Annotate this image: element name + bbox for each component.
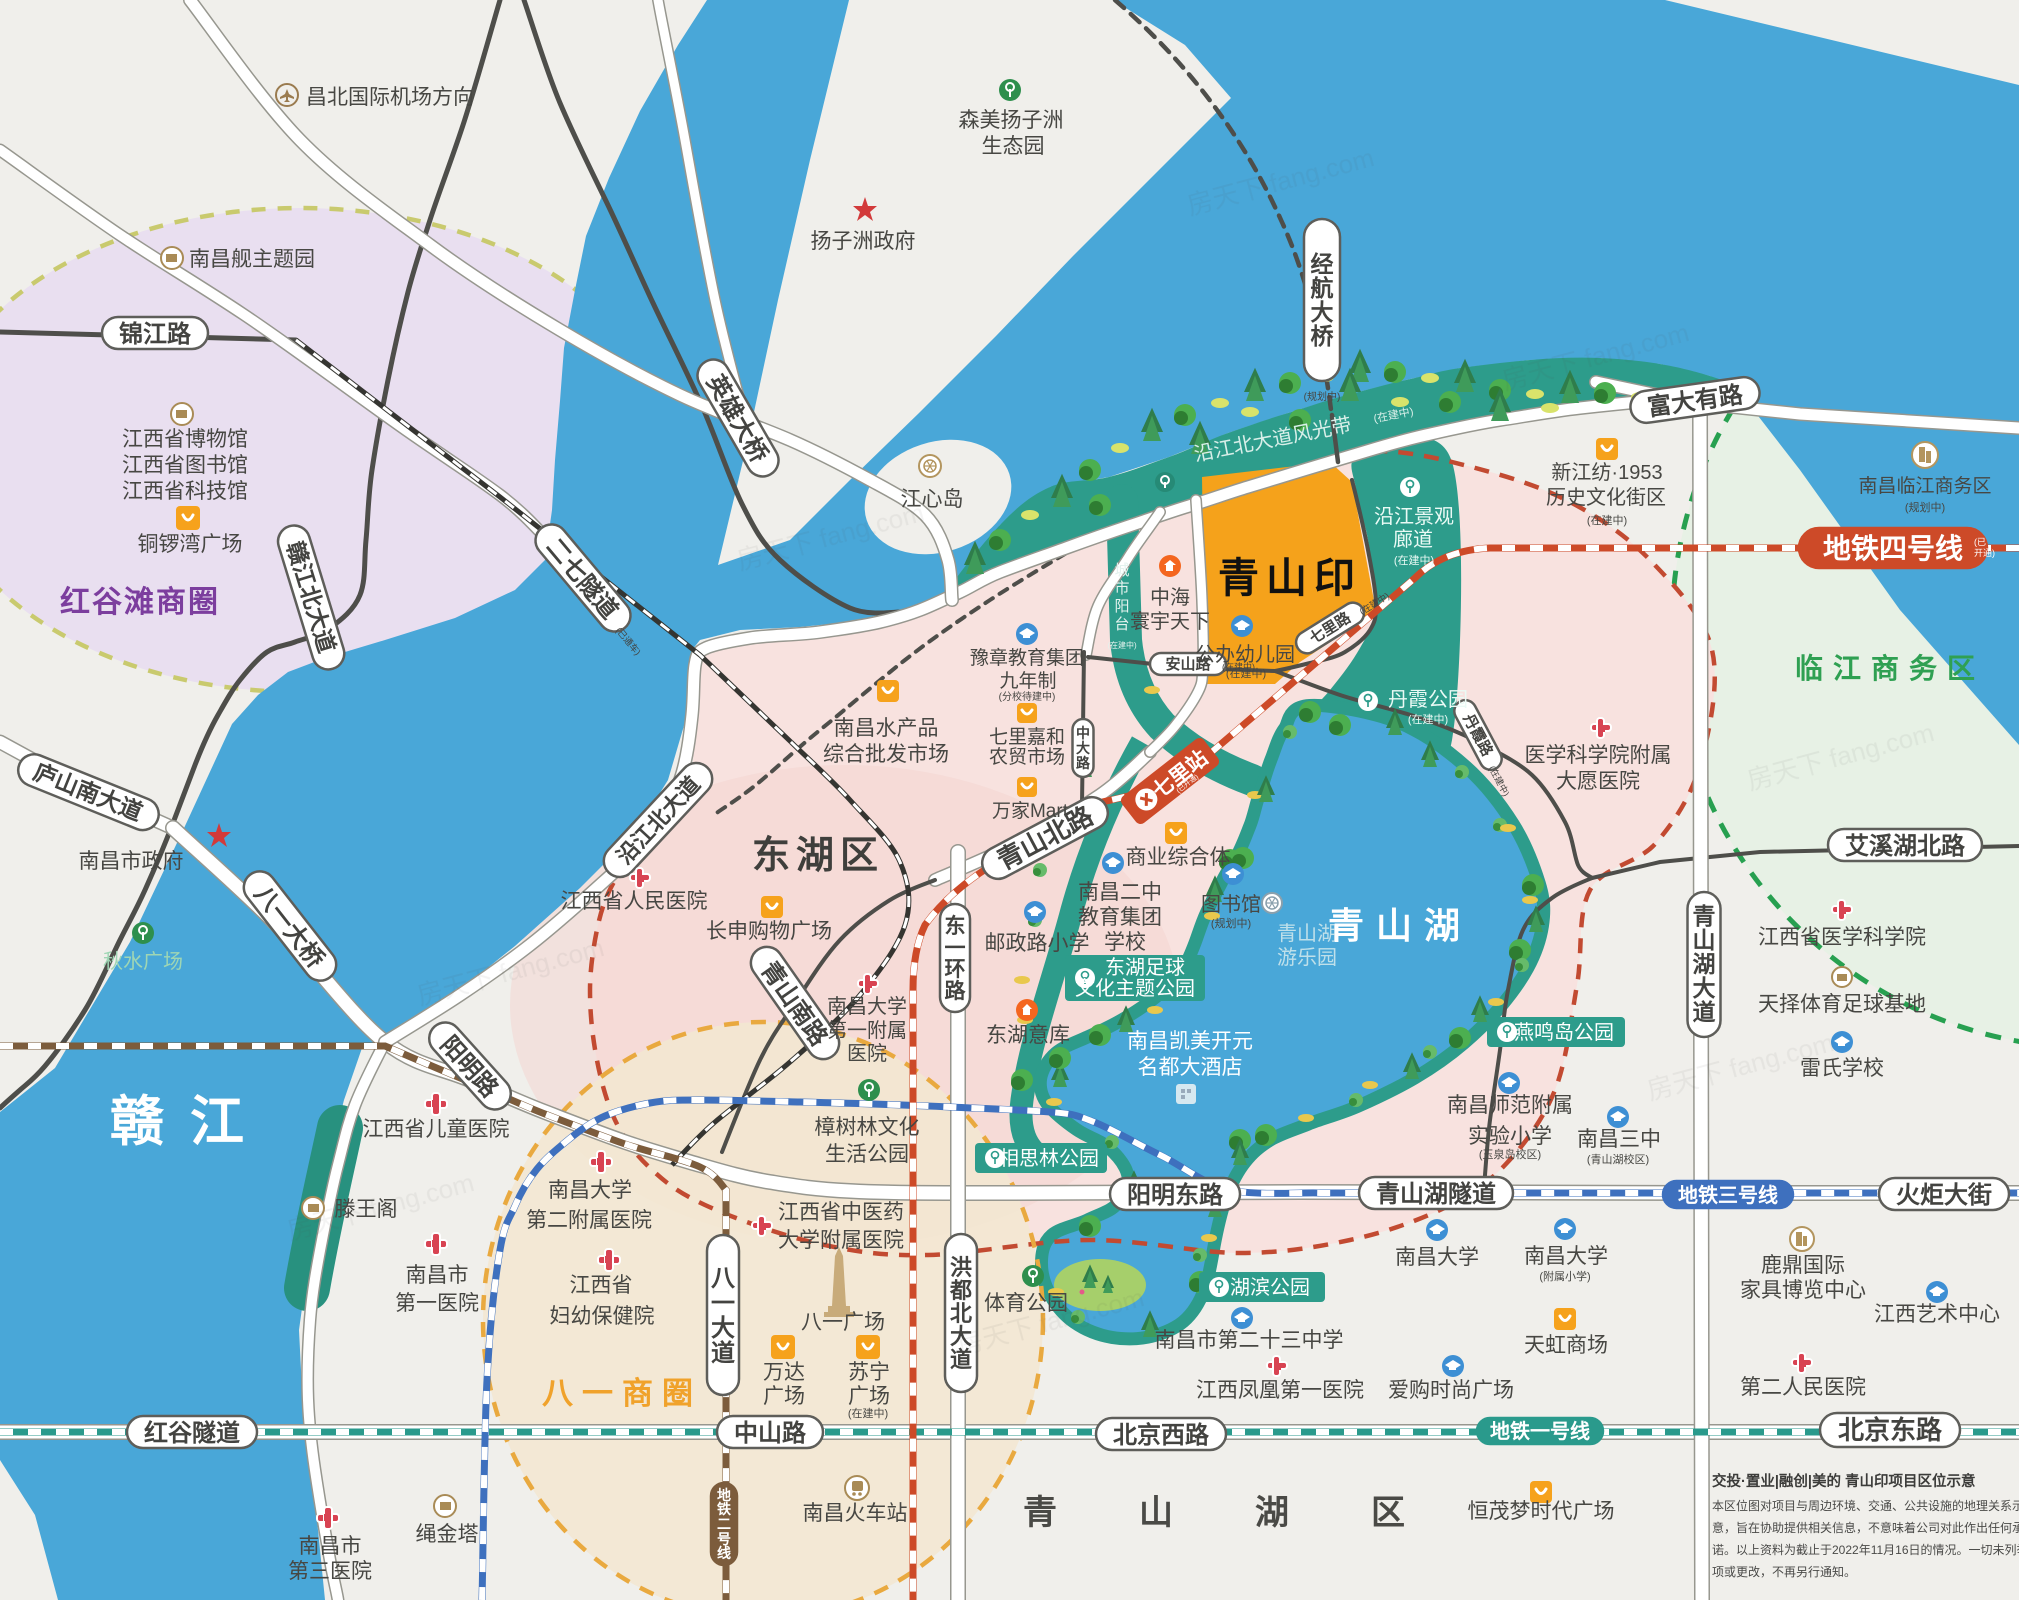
svg-text:七里嘉和: 七里嘉和	[989, 726, 1065, 748]
svg-text:诺。以上资料为截止于2022年11月16日的情况。一切未列举: 诺。以上资料为截止于2022年11月16日的情况。一切未列举事	[1712, 1542, 2019, 1557]
svg-text:项或更改，不再另行通知。: 项或更改，不再另行通知。	[1712, 1565, 1856, 1579]
svg-text:江西凤凰第一医院: 江西凤凰第一医院	[1196, 1379, 1364, 1402]
svg-text:天虹商场: 天虹商场	[1524, 1334, 1608, 1357]
svg-text:丹霞公园: 丹霞公园	[1388, 689, 1468, 711]
svg-text:中山路: 中山路	[734, 1419, 807, 1447]
svg-text:江西省科技馆: 江西省科技馆	[122, 480, 248, 503]
svg-text:环: 环	[945, 958, 966, 981]
svg-text:线: 线	[717, 1545, 731, 1561]
svg-text:实验小学: 实验小学	[1468, 1125, 1552, 1148]
svg-text:东湖意库: 东湖意库	[986, 1024, 1070, 1047]
svg-text:桥: 桥	[1311, 323, 1335, 349]
svg-text:历史文化街区: 历史文化街区	[1546, 486, 1666, 509]
svg-text:绳金塔: 绳金塔	[416, 1523, 479, 1546]
svg-text:医院: 医院	[847, 1042, 887, 1065]
svg-text:医学科学院附属: 医学科学院附属	[1525, 744, 1672, 767]
svg-text:南昌市: 南昌市	[406, 1264, 469, 1287]
svg-text:开通): 开通)	[1974, 548, 1995, 558]
svg-text:沿江景观: 沿江景观	[1374, 505, 1454, 528]
svg-text:名都大酒店: 名都大酒店	[1138, 1056, 1243, 1079]
svg-text:大愿医院: 大愿医院	[1556, 770, 1640, 793]
svg-text:赣江: 赣江	[110, 1092, 270, 1152]
svg-text:路: 路	[1076, 755, 1091, 771]
svg-text:地铁一号线: 地铁一号线	[1490, 1419, 1590, 1443]
svg-text:火炬大街: 火炬大街	[1896, 1181, 1992, 1209]
svg-text:南昌火车站: 南昌火车站	[803, 1502, 908, 1525]
svg-text:(在建中): (在建中)	[1107, 640, 1137, 650]
svg-text:(分校待建中): (分校待建中)	[999, 690, 1056, 703]
svg-text:公办幼儿园: 公办幼儿园	[1195, 643, 1295, 666]
svg-text:道: 道	[1693, 999, 1716, 1025]
svg-text:新江纺·1953: 新江纺·1953	[1551, 461, 1662, 484]
svg-text:昌北国际机场方向: 昌北国际机场方向	[306, 86, 474, 109]
svg-text:北: 北	[950, 1301, 972, 1326]
svg-text:地铁四号线: 地铁四号线	[1823, 533, 1963, 564]
svg-text:生态园: 生态园	[982, 135, 1045, 158]
svg-text:红谷隧道: 红谷隧道	[144, 1419, 240, 1447]
svg-text:中海: 中海	[1150, 586, 1190, 609]
svg-text:爱购时尚广场: 爱购时尚广场	[1388, 1379, 1514, 1402]
svg-text:道: 道	[711, 1339, 735, 1367]
svg-text:经: 经	[1311, 251, 1334, 277]
svg-text:鹿鼎国际: 鹿鼎国际	[1761, 1254, 1845, 1277]
svg-text:生活公园: 生活公园	[825, 1143, 909, 1166]
svg-text:本区位图对项目与周边环境、交通、公共设施的地理关系示: 本区位图对项目与周边环境、交通、公共设施的地理关系示	[1712, 1498, 2019, 1513]
svg-text:秋水广场: 秋水广场	[103, 950, 183, 973]
svg-text:北京东路: 北京东路	[1838, 1415, 1943, 1445]
svg-text:八一广场: 八一广场	[801, 1311, 885, 1334]
svg-text:(附属小学): (附属小学)	[1539, 1269, 1590, 1283]
svg-text:一: 一	[711, 1290, 735, 1317]
svg-text:东湖足球: 东湖足球	[1105, 956, 1185, 979]
svg-text:八一商圈: 八一商圈	[542, 1376, 702, 1411]
svg-text:八: 八	[711, 1265, 736, 1292]
svg-text:樟树林文化: 樟树林文化	[815, 1116, 920, 1139]
svg-text:大: 大	[711, 1315, 735, 1342]
svg-text:青山湖隧道: 青山湖隧道	[1376, 1180, 1496, 1208]
svg-text:二: 二	[717, 1516, 731, 1532]
svg-text:第一医院: 第一医院	[395, 1292, 479, 1315]
svg-text:燕鸣岛公园: 燕鸣岛公园	[1514, 1021, 1614, 1044]
svg-text:大: 大	[1311, 299, 1334, 325]
svg-text:南昌大学: 南昌大学	[1395, 1246, 1479, 1269]
svg-text:(在建中): (在建中)	[1587, 513, 1627, 527]
svg-text:图书馆: 图书馆	[1201, 893, 1261, 916]
svg-text:红谷滩商圈: 红谷滩商圈	[60, 586, 220, 619]
svg-text:(在建中): (在建中)	[1226, 666, 1266, 680]
svg-text:第一附属: 第一附属	[827, 1019, 907, 1042]
svg-text:艾溪湖北路: 艾溪湖北路	[1845, 832, 1966, 860]
svg-text:东湖区: 东湖区	[752, 835, 884, 877]
svg-text:山: 山	[1693, 927, 1716, 953]
svg-text:长申购物广场: 长申购物广场	[706, 920, 832, 943]
svg-text:中: 中	[1076, 725, 1090, 741]
svg-text:路: 路	[945, 979, 967, 1003]
svg-text:学校: 学校	[1104, 931, 1146, 954]
svg-text:江西省医学科学院: 江西省医学科学院	[1758, 926, 1926, 949]
svg-text:阳明东路: 阳明东路	[1127, 1181, 1224, 1209]
svg-text:阳: 阳	[1114, 598, 1129, 615]
svg-text:江西省人民医院: 江西省人民医院	[561, 890, 708, 913]
svg-text:南昌市政府: 南昌市政府	[79, 850, 184, 873]
svg-text:临江商务区: 临江商务区	[1795, 652, 1985, 684]
svg-text:南昌大学: 南昌大学	[1524, 1245, 1608, 1268]
svg-text:广场: 广场	[848, 1385, 890, 1408]
svg-text:廊道: 廊道	[1393, 528, 1433, 551]
svg-text:青: 青	[1693, 903, 1716, 929]
svg-text:第二附属医院: 第二附属医院	[526, 1209, 652, 1232]
svg-text:寰宇天下: 寰宇天下	[1130, 610, 1210, 633]
svg-text:铜锣湾广场: 铜锣湾广场	[138, 533, 243, 556]
svg-text:恒茂梦时代广场: 恒茂梦时代广场	[1468, 1500, 1615, 1523]
svg-text:江西省图书馆: 江西省图书馆	[122, 454, 248, 477]
svg-text:(在建中): (在建中)	[848, 1406, 888, 1420]
svg-text:(已: (已	[1974, 537, 1986, 547]
svg-text:游乐园: 游乐园	[1277, 946, 1337, 969]
svg-text:广场: 广场	[763, 1385, 805, 1408]
svg-text:锦江路: 锦江路	[119, 320, 192, 348]
svg-text:(在建中): (在建中)	[1394, 553, 1434, 567]
svg-text:扬子洲政府: 扬子洲政府	[811, 230, 916, 253]
svg-text:北京西路: 北京西路	[1113, 1421, 1210, 1449]
svg-text:南昌舰主题园: 南昌舰主题园	[189, 248, 315, 271]
svg-text:邮政路小学: 邮政路小学	[985, 932, 1090, 955]
svg-text:综合批发市场: 综合批发市场	[823, 743, 949, 766]
svg-text:(玉泉岛校区): (玉泉岛校区)	[1479, 1147, 1541, 1161]
svg-text:一: 一	[945, 937, 966, 960]
svg-text:江西省中医药: 江西省中医药	[778, 1201, 904, 1224]
svg-text:(规划中): (规划中)	[1211, 916, 1251, 930]
svg-text:苏宁: 苏宁	[848, 1361, 890, 1384]
svg-text:(规划中): (规划中)	[1905, 500, 1945, 514]
svg-text:文化主题公园: 文化主题公园	[1075, 977, 1195, 1000]
svg-text:台: 台	[1114, 616, 1129, 633]
svg-text:家具博览中心: 家具博览中心	[1740, 1279, 1866, 1302]
svg-text:第三医院: 第三医院	[288, 1560, 372, 1583]
svg-text:大学附属医院: 大学附属医院	[778, 1229, 904, 1252]
svg-text:城: 城	[1114, 562, 1129, 579]
svg-text:妇幼保健院: 妇幼保健院	[550, 1305, 655, 1328]
svg-text:商业综合体: 商业综合体	[1126, 846, 1231, 869]
svg-text:(在建中): (在建中)	[1408, 712, 1448, 726]
svg-text:江西艺术中心: 江西艺术中心	[1874, 1303, 2000, 1326]
svg-text:九年制: 九年制	[999, 670, 1056, 692]
svg-text:江西省儿童医院: 江西省儿童医院	[363, 1118, 510, 1141]
svg-text:意，旨在协助提供相关信息，不意味着公司对此作出任何承: 意，旨在协助提供相关信息，不意味着公司对此作出任何承	[1712, 1520, 2019, 1535]
svg-text:大: 大	[1076, 740, 1090, 756]
svg-text:航: 航	[1311, 275, 1334, 301]
svg-text:南昌大学: 南昌大学	[548, 1179, 632, 1202]
svg-text:南昌大学: 南昌大学	[827, 995, 907, 1018]
svg-text:洪: 洪	[950, 1255, 972, 1280]
svg-text:南昌临江商务区: 南昌临江商务区	[1858, 475, 1991, 497]
svg-text:森美扬子洲: 森美扬子洲	[959, 109, 1064, 132]
svg-text:南昌师范附属: 南昌师范附属	[1447, 1094, 1573, 1117]
svg-text:江西省: 江西省	[570, 1274, 633, 1297]
svg-text:(青山湖校区): (青山湖校区)	[1587, 1152, 1649, 1166]
svg-text:第二人民医院: 第二人民医院	[1740, 1376, 1866, 1399]
svg-text:万达: 万达	[763, 1361, 805, 1384]
svg-text:湖滨公园: 湖滨公园	[1230, 1276, 1310, 1299]
svg-text:市: 市	[1114, 580, 1129, 597]
svg-text:东: 东	[945, 914, 966, 938]
svg-text:青山湖: 青山湖	[1328, 905, 1472, 946]
svg-text:青山印: 青山印	[1218, 555, 1362, 601]
svg-text:都: 都	[949, 1278, 972, 1303]
svg-text:湖: 湖	[1693, 951, 1716, 977]
svg-text:大: 大	[1693, 975, 1716, 1001]
svg-text:(规划中): (规划中)	[1304, 390, 1341, 403]
svg-text:南昌凯美开元: 南昌凯美开元	[1127, 1030, 1253, 1053]
svg-text:天择体育足球基地: 天择体育足球基地	[1758, 993, 1926, 1016]
svg-text:豫章教育集团: 豫章教育集团	[970, 647, 1084, 669]
svg-text:南昌三中: 南昌三中	[1577, 1128, 1661, 1151]
svg-text:南昌水产品: 南昌水产品	[834, 717, 939, 740]
svg-text:青山湖区: 青山湖区	[1023, 1494, 1487, 1532]
svg-text:农贸市场: 农贸市场	[989, 746, 1065, 768]
svg-text:教育集团: 教育集团	[1078, 906, 1162, 929]
svg-text:江西省博物馆: 江西省博物馆	[122, 428, 248, 451]
svg-text:相思林公园: 相思林公园	[999, 1147, 1099, 1170]
svg-text:南昌二中: 南昌二中	[1078, 881, 1162, 904]
svg-text:南昌市第二十三中学: 南昌市第二十三中学	[1155, 1329, 1344, 1352]
svg-text:南昌市: 南昌市	[299, 1535, 362, 1558]
svg-text:万家Mart: 万家Mart	[992, 800, 1069, 822]
svg-text:铁: 铁	[717, 1501, 731, 1517]
svg-text:地铁三号线: 地铁三号线	[1678, 1183, 1778, 1207]
svg-text:交投·置业|融创|美的 青山印项目区位示意: 交投·置业|融创|美的 青山印项目区位示意	[1712, 1472, 1975, 1490]
